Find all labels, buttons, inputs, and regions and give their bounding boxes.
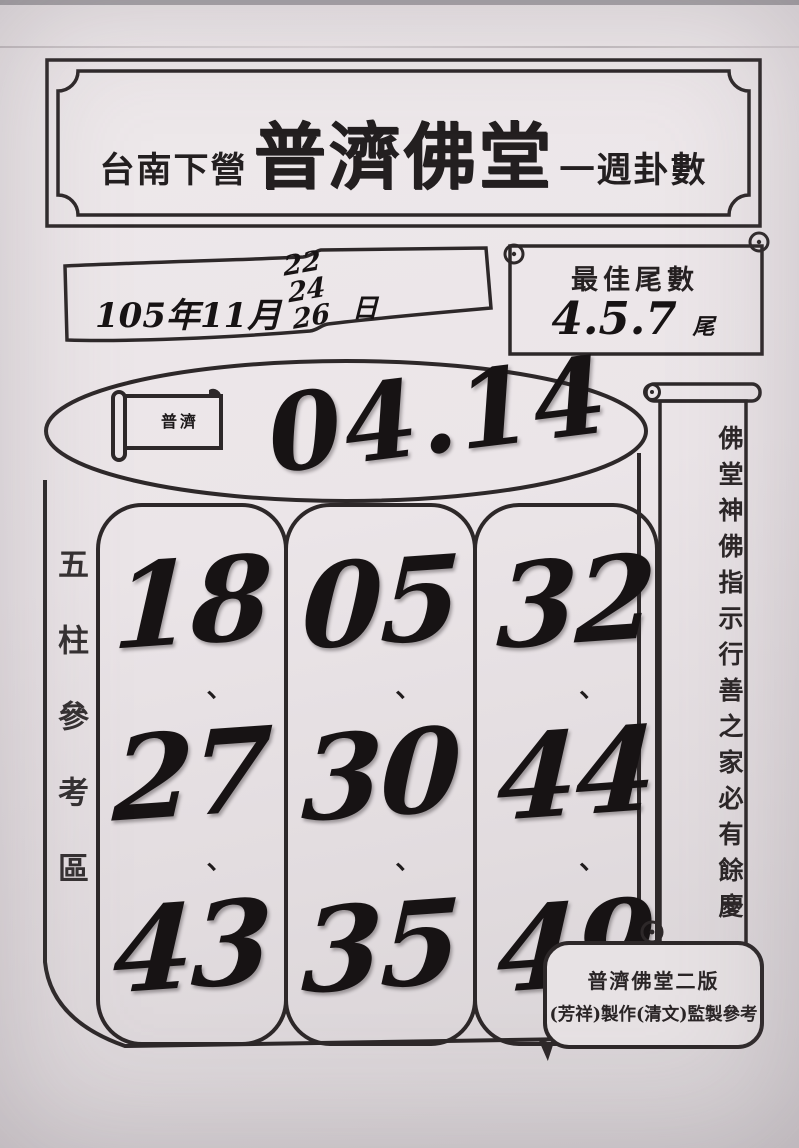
flag-text: 普濟	[140, 408, 220, 432]
best-tail-unit: 尾	[692, 314, 714, 340]
number-row: 05 、	[288, 517, 473, 689]
draw-date: 105年11月	[95, 288, 281, 337]
footer-credits: (芳祥)製作(清文)監製參考	[547, 1001, 760, 1026]
number-row: 35 、	[288, 861, 473, 1033]
number-row: 18 、	[100, 517, 284, 689]
lottery-number: 27	[111, 701, 273, 849]
paper-crease-line	[0, 46, 799, 48]
number-row: 43 、	[100, 861, 284, 1033]
left-vertical-label: 五柱參考區	[48, 548, 93, 948]
number-row: 44 、	[477, 689, 655, 861]
right-banner-motto: 佛堂神佛指示行善之家必有餘慶	[661, 412, 747, 942]
photo-top-edge	[0, 0, 799, 5]
date-day: 26	[292, 300, 330, 334]
lottery-number: 05	[300, 529, 462, 677]
lottery-number: 43	[111, 873, 273, 1021]
best-tail-value: 4.5.7 尾	[508, 292, 758, 345]
scanned-temple-lottery-sheet: 台南下營普濟佛堂一週卦數 105年11月 22 24 26 日 最佳尾數 4.5…	[0, 0, 799, 1148]
footer-edition: 普濟佛堂二版	[547, 965, 760, 994]
lottery-number: 30	[300, 701, 462, 849]
title-suffix: 一週卦數	[560, 150, 708, 191]
number-column-2: 05 、 30 、 35 、	[284, 503, 477, 1046]
lottery-number: 18	[111, 529, 273, 677]
title-prefix: 台南下營	[99, 150, 247, 191]
date-day-suffix: 日	[352, 288, 378, 325]
number-row: 27 、	[100, 689, 284, 861]
page-title: 台南下營普濟佛堂一週卦數	[45, 98, 762, 203]
number-row: 30 、	[288, 689, 473, 861]
number-column-1: 18 、 27 、 43 、	[96, 503, 288, 1046]
title-main: 普濟佛堂	[253, 114, 553, 199]
lottery-number: 35	[300, 873, 462, 1021]
number-row: 32 、	[477, 517, 655, 689]
date-year-month: 105年11月	[95, 296, 281, 336]
footer-credit-box: 普濟佛堂二版 (芳祥)製作(清文)監製參考	[543, 941, 764, 1049]
